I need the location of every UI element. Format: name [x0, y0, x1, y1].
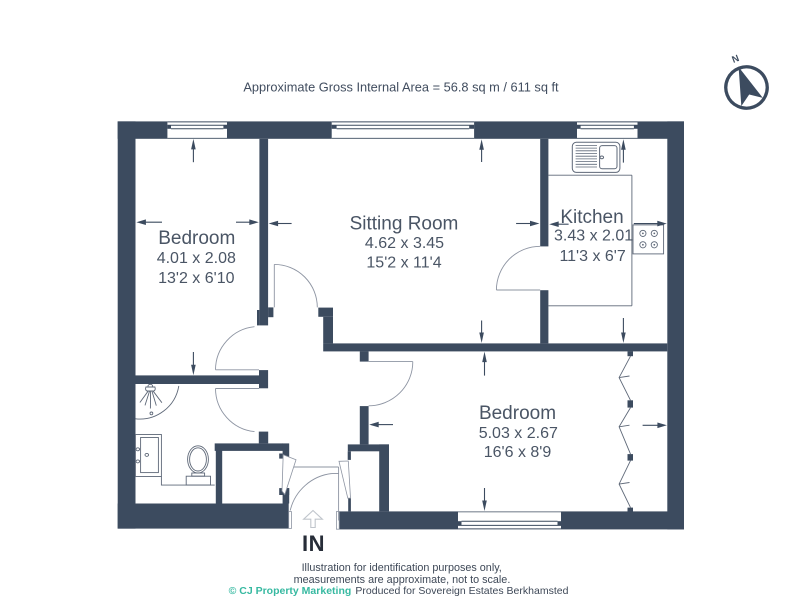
svg-text:Kitchen: Kitchen [560, 207, 623, 228]
svg-text:Sitting Room: Sitting Room [350, 213, 459, 234]
svg-text:Bedroom: Bedroom [158, 228, 235, 249]
svg-text:13'2 x 6'10: 13'2 x 6'10 [158, 270, 234, 287]
svg-text:© CJ Property Marketing: © CJ Property Marketing [229, 585, 352, 597]
svg-text:11'3 x 6'7: 11'3 x 6'7 [559, 248, 625, 265]
svg-text:5.03 x 2.67: 5.03 x 2.67 [479, 425, 558, 442]
svg-text:Produced for Sovereign Estates: Produced for Sovereign Estates Berkhamst… [355, 585, 568, 597]
svg-text:4.62 x 3.45: 4.62 x 3.45 [365, 235, 444, 252]
svg-text:Approximate Gross Internal Are: Approximate Gross Internal Area = 56.8 s… [243, 80, 559, 95]
svg-text:3.43 x 2.01: 3.43 x 2.01 [554, 227, 633, 244]
svg-text:15'2 x 11'4: 15'2 x 11'4 [366, 255, 441, 272]
svg-text:Bedroom: Bedroom [479, 403, 556, 424]
svg-text:IN: IN [302, 531, 325, 556]
svg-text:16'6 x 8'9: 16'6 x 8'9 [484, 444, 552, 461]
svg-text:4.01 x 2.08: 4.01 x 2.08 [157, 250, 236, 267]
svg-text:Illustration for identificatio: Illustration for identification purposes… [302, 562, 502, 574]
